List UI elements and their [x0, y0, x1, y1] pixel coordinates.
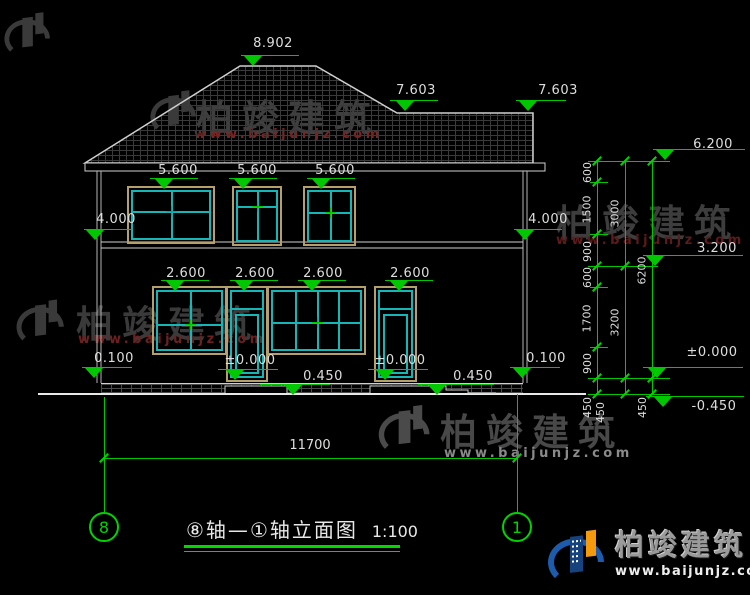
- level-win2-head-2: 5.600: [233, 163, 281, 178]
- level-door-zero-2: ±0.000: [370, 353, 430, 368]
- dim-bottom-450c: 450: [634, 384, 650, 430]
- cad-grip: [171, 206, 172, 217]
- dim-chain-rule: [588, 161, 670, 162]
- cad-grip: [330, 207, 331, 218]
- window-2f-2: [232, 186, 282, 246]
- title-scale: 1:100: [372, 522, 418, 541]
- level-win2-head-3-arrow: [312, 179, 330, 189]
- level-plinth-right-arrow: [513, 368, 531, 378]
- window-1f-2: [267, 286, 366, 355]
- brand-logo-name: 柏竣建筑: [615, 522, 750, 564]
- level-door-zero-2-arrow: [376, 370, 394, 380]
- window-mullion: [295, 292, 297, 349]
- level-plinth-right: 0.100: [524, 351, 568, 366]
- roof: [85, 66, 533, 163]
- window-mullion: [338, 292, 340, 349]
- level-win1-head-2: 2.600: [233, 266, 277, 281]
- dim-mid-3200: 3200: [607, 299, 623, 345]
- window-2f-3: [303, 186, 356, 246]
- dim-inner-600b: 600: [579, 254, 595, 300]
- level-ground-arrow: [654, 397, 672, 407]
- level-win2-head-1-arrow: [155, 179, 173, 189]
- window-1f-1-glass: [156, 290, 223, 351]
- cad-grip: [257, 201, 258, 212]
- step-door-1: [225, 386, 287, 393]
- level-roof-break-1-arrow: [396, 101, 414, 111]
- level-win1-head-1: 2.600: [164, 266, 208, 281]
- level-door-zero-1: ±0.000: [220, 353, 280, 368]
- drawing-title: ⑧轴— ①轴立面图 1:100: [186, 514, 418, 543]
- level-step-2-arrow: [428, 385, 446, 395]
- level-win2-head-3: 5.600: [311, 163, 359, 178]
- level-win1-head-3-arrow: [303, 281, 321, 291]
- level-win1-head-3: 2.600: [301, 266, 345, 281]
- window-1f-1: [152, 286, 227, 355]
- door-transom: [232, 308, 262, 310]
- level-win1-head-1-arrow: [166, 281, 184, 291]
- axis-bubble-1-label: 1: [512, 518, 522, 537]
- level-floor2-right-arrow: [516, 230, 534, 240]
- level-plinth-left: 0.100: [92, 351, 136, 366]
- level-ridge-arrow: [244, 56, 262, 66]
- title-underline-thin: [184, 551, 400, 552]
- dim-inner-1500: 1500: [579, 186, 595, 232]
- dim-inner-1700: 1700: [579, 295, 595, 341]
- title-axis-to: ①轴立面图: [250, 514, 358, 543]
- level-floor2-left: 4.000: [94, 212, 138, 227]
- level-plinth-left-arrow: [85, 368, 103, 378]
- level-win2-head-2-arrow: [234, 179, 252, 189]
- cad-grip: [190, 319, 191, 330]
- level-win2-head-1: 5.600: [154, 163, 202, 178]
- title-underline-thick: [184, 545, 400, 548]
- brand-logo: 柏竣建筑 www.baijunjz.com: [545, 522, 750, 586]
- level-win1-head-2-arrow: [235, 281, 253, 291]
- window-2f-1: [127, 186, 215, 244]
- dim-total-width-line: [104, 458, 517, 459]
- elevation-drawing: 柏竣建筑 www.baijunjz.com 柏竣建筑 www.baijunjz.…: [0, 0, 750, 595]
- level-win1-head-4: 2.600: [388, 266, 432, 281]
- dim-chain-rule: [588, 378, 670, 379]
- axis-line-1: [517, 394, 518, 512]
- brand-logo-icon: [545, 522, 609, 586]
- window-2f-2-glass: [236, 190, 278, 242]
- level-zero: ±0.000: [676, 345, 748, 360]
- level-step-1-arrow: [284, 385, 302, 395]
- title-axis-from: ⑧轴—: [186, 514, 250, 543]
- brand-logo-url: www.baijunjz.com: [615, 564, 750, 579]
- window-2f-1-glass: [131, 190, 211, 240]
- brand-logo-text: 柏竣建筑 www.baijunjz.com: [615, 522, 750, 579]
- dim-chain-line-mid: [625, 161, 626, 394]
- dim-total-width: 11700: [260, 438, 360, 453]
- level-roof-break-2-arrow: [519, 101, 537, 111]
- level-step-2: 0.450: [451, 369, 495, 384]
- level-win1-head-4-arrow: [390, 281, 408, 291]
- dim-mid-3000: 3000: [607, 190, 623, 236]
- axis-bubble-8-label: 8: [99, 518, 109, 537]
- level-eave-arrow: [656, 150, 674, 160]
- level-roof-break-1: 7.603: [390, 83, 442, 98]
- dim-bottom-450b: 450: [592, 389, 608, 435]
- level-step-1: 0.450: [301, 369, 345, 384]
- level-floor2-top: 3.200: [688, 241, 746, 256]
- dim-outer-6200: 6200: [634, 247, 650, 293]
- door-transom: [380, 308, 411, 310]
- window-2f-3-glass: [307, 190, 352, 242]
- level-floor2-right: 4.000: [526, 212, 570, 227]
- cad-grip: [317, 317, 318, 328]
- axis-bubble-1: 1: [502, 512, 532, 542]
- level-ground: -0.450: [680, 399, 748, 414]
- level-roof-break-2: 7.603: [532, 83, 584, 98]
- dim-inner-900b: 900: [579, 340, 595, 386]
- window-1f-2-glass: [271, 290, 362, 351]
- dim-chain-line-inner: [597, 161, 598, 394]
- level-ridge: 8.902: [243, 36, 303, 51]
- level-floor2-left-arrow: [86, 230, 104, 240]
- level-door-zero-1-arrow: [226, 370, 244, 380]
- axis-bubble-8: 8: [89, 512, 119, 542]
- window-mullion: [257, 192, 259, 240]
- dim-chain-line-outer: [652, 161, 653, 394]
